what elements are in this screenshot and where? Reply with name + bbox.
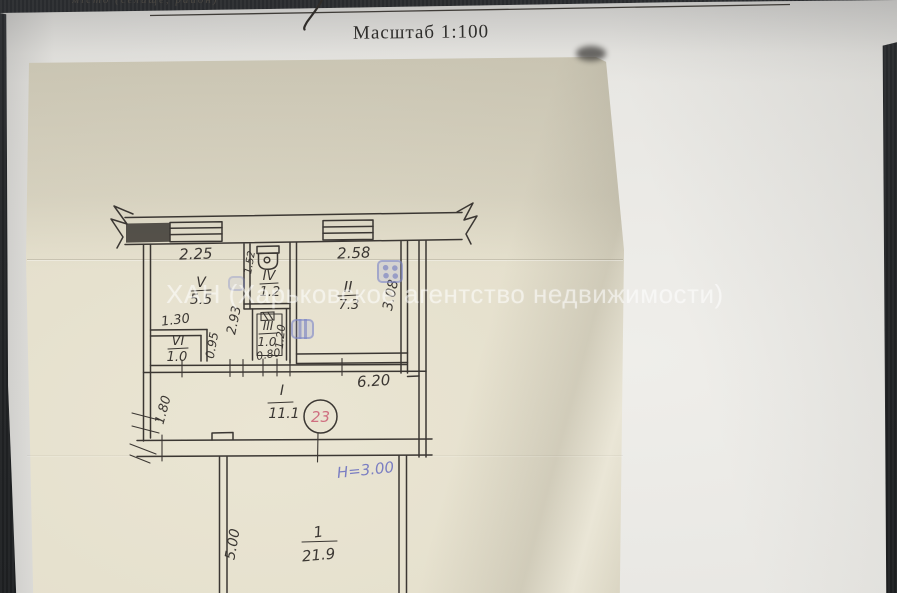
window-2	[323, 220, 373, 240]
dim-ii-side: 3.08	[380, 278, 402, 312]
height-note: Н=3.00	[336, 458, 395, 482]
room-iii-numeral: III	[263, 319, 274, 333]
dim-hall-side: 1.80	[153, 394, 175, 426]
room-ii-numeral: II	[344, 278, 353, 296]
dim-v-side: 2.93	[224, 305, 245, 336]
doorway-threshold	[212, 433, 233, 441]
wall-break-right	[457, 203, 477, 244]
room-vi-numeral: VI	[172, 334, 185, 349]
room-iv-numeral: IV	[263, 269, 277, 284]
room-vi-area: 1.0	[167, 350, 188, 365]
toilet-icon	[257, 246, 279, 269]
stamp-icon	[228, 276, 245, 291]
dim-room1-side: 5.00	[222, 527, 243, 561]
room-1-numeral: 1	[312, 522, 324, 541]
dim-hall-width: 6.20	[356, 371, 391, 391]
dim-top-right: 2.58	[337, 243, 371, 262]
room-i-numeral: I	[280, 383, 284, 399]
dim-top-left: 2.25	[179, 244, 213, 263]
room-i-area: 11.1	[268, 406, 299, 422]
room-ii-area: 7.3	[339, 298, 360, 313]
window-1	[170, 222, 222, 242]
stamp-icon	[291, 319, 314, 339]
dim-vi-side: 0.95	[203, 331, 221, 360]
room-1-area: 21.9	[301, 545, 336, 566]
apartment-number-circle: 23	[304, 400, 337, 433]
scanned-floor-plan-photo: місто (селище, район) Масштаб 1:100	[0, 0, 897, 593]
room-iv-area: 1.2	[260, 285, 281, 300]
room-iii-area: 1.0	[257, 335, 276, 349]
floor-plan: 2.25 2.58 1.30 1.52 2.93 0.95 0.80 1.20 …	[0, 0, 897, 593]
room-v-numeral: V	[196, 275, 207, 291]
dim-vi-top: 1.30	[160, 311, 191, 329]
room-v-area: 5.5	[190, 292, 212, 308]
apartment-number: 23	[311, 408, 330, 426]
stamp-icon	[377, 260, 403, 283]
